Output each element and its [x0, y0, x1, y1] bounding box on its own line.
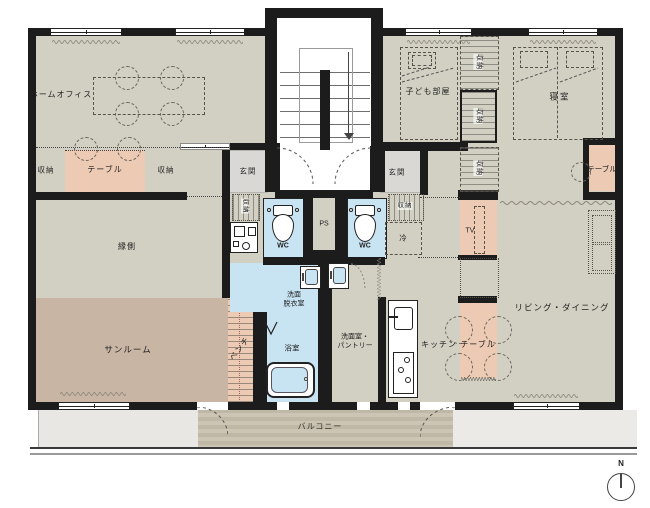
room-label-entrance: 玄関: [240, 166, 257, 175]
wall: [420, 150, 428, 195]
bathtub: [266, 362, 315, 398]
chair: [160, 102, 184, 126]
curtain-mark: [500, 200, 612, 206]
curtain-mark: [376, 258, 382, 300]
curtain-mark: [52, 39, 120, 45]
room-label-table: テーブル: [587, 164, 617, 173]
sofa-seat: [592, 215, 612, 243]
stair-center-wall: [320, 70, 330, 150]
door-swing-arc: [420, 407, 455, 437]
wall: [228, 143, 280, 150]
window: [50, 28, 122, 36]
room-label-sunroom: サンルーム: [104, 345, 151, 356]
terrace-slab-right: [453, 410, 637, 447]
home-office-table: [93, 77, 205, 115]
room-label-ps: PS: [319, 221, 328, 230]
curtain-mark: [407, 39, 470, 45]
compass-needle: [620, 474, 622, 488]
wall: [378, 297, 386, 402]
stair-direction-arrow: [344, 133, 354, 140]
floor-plan: N ホームオフィス 収納 テーブル 収納 縁側 サンルーム ベンチ 玄関 玄関 …: [0, 0, 650, 508]
window: [58, 402, 130, 410]
stair-direction-line: [348, 52, 349, 134]
room-label-kids-room: 子ども部屋: [406, 87, 451, 97]
closet-label: 収納: [398, 202, 413, 210]
window: [175, 28, 245, 36]
vent-opening: [357, 402, 370, 410]
curtain-mark: [60, 391, 126, 397]
balcony-edge-line: [30, 447, 637, 449]
room-label-table: テーブル: [460, 340, 496, 350]
window: [528, 28, 598, 36]
room-label-storage: 収納: [158, 165, 175, 174]
room-label-engawa: 縁側: [118, 242, 136, 252]
boundary-dotted: [187, 196, 222, 197]
wall: [36, 192, 187, 200]
door-swing-arc: [334, 147, 371, 185]
mini-kitchen: [230, 222, 258, 253]
room-label-bedroom: 寝室: [549, 92, 570, 103]
wall: [222, 148, 230, 298]
kitchen-counter: [388, 300, 418, 398]
kitchen-faucet: [389, 316, 398, 318]
chair: [74, 137, 98, 161]
window: [513, 402, 580, 410]
curtain-mark: [177, 39, 243, 45]
window: [405, 28, 472, 36]
chair: [115, 66, 139, 90]
room-label-washroom: 洗面 脱衣室: [284, 291, 305, 309]
door-swing-arc: [277, 147, 314, 185]
toilet-dot: [377, 208, 381, 212]
kitchen-stove: [393, 352, 414, 394]
closet-label: 収納: [474, 54, 483, 70]
compass-north-label: N: [618, 459, 624, 469]
chair: [160, 66, 184, 90]
toilet-dot: [295, 208, 299, 212]
wall: [263, 257, 308, 265]
wall: [370, 146, 385, 192]
boundary-dotted: [420, 197, 460, 198]
curtain-mark: [530, 39, 596, 45]
tv-outline: [474, 206, 485, 254]
room-label-balcony: バルコニー: [298, 422, 343, 432]
vent-opening: [398, 402, 410, 410]
boundary-dotted: [418, 257, 460, 258]
blind-mark: [461, 376, 496, 382]
wall: [371, 8, 383, 148]
room-label-tv: TV: [466, 228, 475, 237]
room-label-entrance: 玄関: [389, 167, 406, 176]
room-label-bathroom: 浴室: [285, 343, 300, 352]
washing-machine: [300, 266, 321, 289]
toilet-dot: [349, 208, 353, 212]
chair: [115, 102, 139, 126]
bed-fold-line: [400, 64, 456, 84]
washing-machine: [328, 263, 349, 289]
wall: [275, 190, 373, 198]
terrace-slab-left: [38, 410, 198, 447]
boundary-dotted: [36, 147, 228, 148]
room-label-storage: 収納: [38, 165, 55, 174]
toilet-dot: [267, 208, 271, 212]
room-label-home-office: ホームオフィス: [30, 90, 93, 100]
wall: [583, 192, 623, 200]
bed-fold-line: [514, 64, 600, 84]
closet-label: 収納: [474, 108, 483, 124]
vent-opening: [277, 402, 289, 410]
washer-door-arc: [351, 263, 366, 290]
wall: [28, 28, 36, 410]
wall: [265, 8, 277, 148]
wall: [615, 28, 623, 410]
room-label-living-dining: リビング・ダイニング: [514, 303, 609, 314]
room-label-wc: WC: [359, 243, 371, 252]
closet-label: 収納: [241, 199, 249, 214]
chair: [117, 137, 141, 161]
room-label-kitchen: キッチン: [421, 340, 457, 350]
counter-open-shelf: [460, 258, 499, 298]
room-label-pantry: 洗面室・ パントリー: [337, 333, 372, 351]
closet-label: 収納: [474, 160, 483, 176]
room-label-wc: WC: [277, 243, 289, 252]
room-label-table: テーブル: [87, 165, 123, 175]
room-label-fridge: 冷: [399, 233, 407, 242]
sofa-seat: [592, 244, 612, 271]
curtain-mark: [514, 393, 578, 399]
door-swing-arc: [197, 407, 228, 437]
shower-symbol: [263, 320, 279, 336]
balcony-edge-line: [30, 453, 637, 455]
kitchen-sink: [394, 307, 413, 330]
wall: [265, 8, 383, 18]
